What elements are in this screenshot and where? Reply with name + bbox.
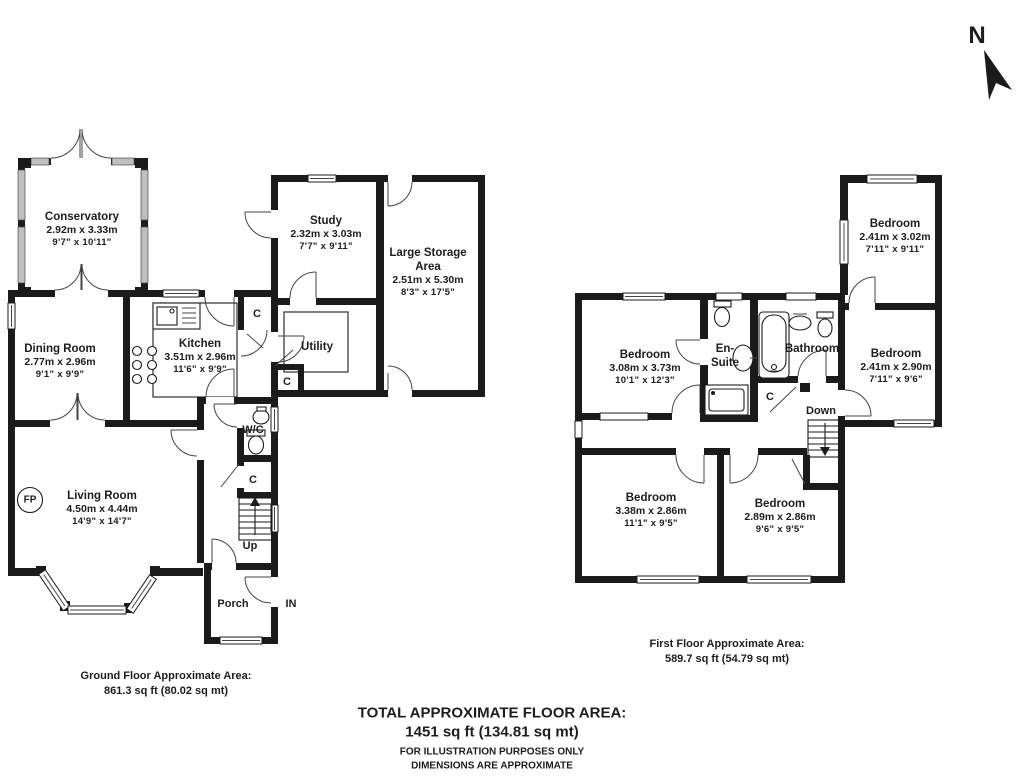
fireplace-label: FP xyxy=(24,495,37,506)
stairs-up xyxy=(239,497,272,540)
room-label-study: Study 2.32m x 3.03m 7'7" x 9'11" xyxy=(290,214,361,252)
cupboard-label-kitchen: C xyxy=(253,308,261,320)
cupboard-label-landing: C xyxy=(766,391,774,403)
disclaimer-line-1: FOR ILLUSTRATION PURPOSES ONLY xyxy=(400,747,584,758)
room-label-bathroom: Bathroom xyxy=(785,342,839,356)
room-label-ensuite: En- Suite xyxy=(711,342,739,370)
room-label-conservatory: Conservatory 2.92m x 3.33m 9'7" x 10'11" xyxy=(45,210,119,248)
cupboard-label-utility: C xyxy=(283,376,291,388)
room-label-storage: Large Storage Area 2.51m x 5.30m 8'3" x … xyxy=(378,246,478,298)
floorplan-drawing xyxy=(0,0,1024,780)
disclaimer-line-2: DIMENSIONS ARE APPROXIMATE xyxy=(411,761,573,772)
hob-icon xyxy=(133,347,157,384)
room-label-bedroom-front: Bedroom 3.08m x 3.73m 10'1" x 12'3" xyxy=(609,348,680,386)
bedroom-front-walls xyxy=(575,385,708,420)
cupboard-label-stairs: C xyxy=(249,474,257,486)
room-label-porch: Porch xyxy=(217,598,248,610)
floorplan-page: N Conservatory 2.92m x 3.33m 9'7" x 10'1… xyxy=(0,0,1024,780)
kitchen-sink xyxy=(153,303,200,329)
basin-icon xyxy=(789,314,811,330)
toilet-icon xyxy=(817,312,833,337)
shower-icon xyxy=(705,385,748,415)
north-arrow-icon xyxy=(984,50,1012,100)
room-label-kitchen: Kitchen 3.51m x 2.96m 11'6" x 9'9" xyxy=(164,337,235,375)
total-area-title: TOTAL APPROXIMATE FLOOR AREA: xyxy=(358,705,627,722)
room-label-bedroom-back-right: Bedroom 2.89m x 2.86m 9'6" x 9'5" xyxy=(744,497,815,535)
compass-north-label: N xyxy=(968,22,985,50)
first-floor-area-note: First Floor Approximate Area: 589.7 sq f… xyxy=(649,637,804,667)
room-label-bedroom-top-right: Bedroom 2.41m x 3.02m 7'11" x 9'11" xyxy=(859,217,930,255)
landing-cupboard-walls xyxy=(750,383,810,422)
room-label-dining-room: Dining Room 2.77m x 2.96m 9'1" x 9'9" xyxy=(24,342,96,380)
total-area-value: 1451 sq ft (134.81 sq mt) xyxy=(405,724,578,741)
ground-floor-plan xyxy=(8,129,485,644)
ground-floor-area-note: Ground Floor Approximate Area: 861.3 sq … xyxy=(81,669,252,699)
room-label-bedroom-right: Bedroom 2.41m x 2.90m 7'11" x 9'6" xyxy=(860,347,931,385)
room-label-wc: W/C xyxy=(242,424,263,436)
right-wing-walls xyxy=(840,175,942,427)
porch-walls xyxy=(204,539,278,644)
stairs-down-label: Down xyxy=(806,405,836,417)
entrance-label: IN xyxy=(286,598,297,610)
room-label-living-room: Living Room 4.50m x 4.44m 14'9" x 14'7" xyxy=(66,489,137,527)
room-label-utility: Utility xyxy=(301,340,333,354)
stairs-up-label: Up xyxy=(243,540,258,552)
room-label-bedroom-back-left: Bedroom 3.38m x 2.86m 11'1" x 9'5" xyxy=(615,491,686,529)
stairs-down xyxy=(808,420,842,457)
